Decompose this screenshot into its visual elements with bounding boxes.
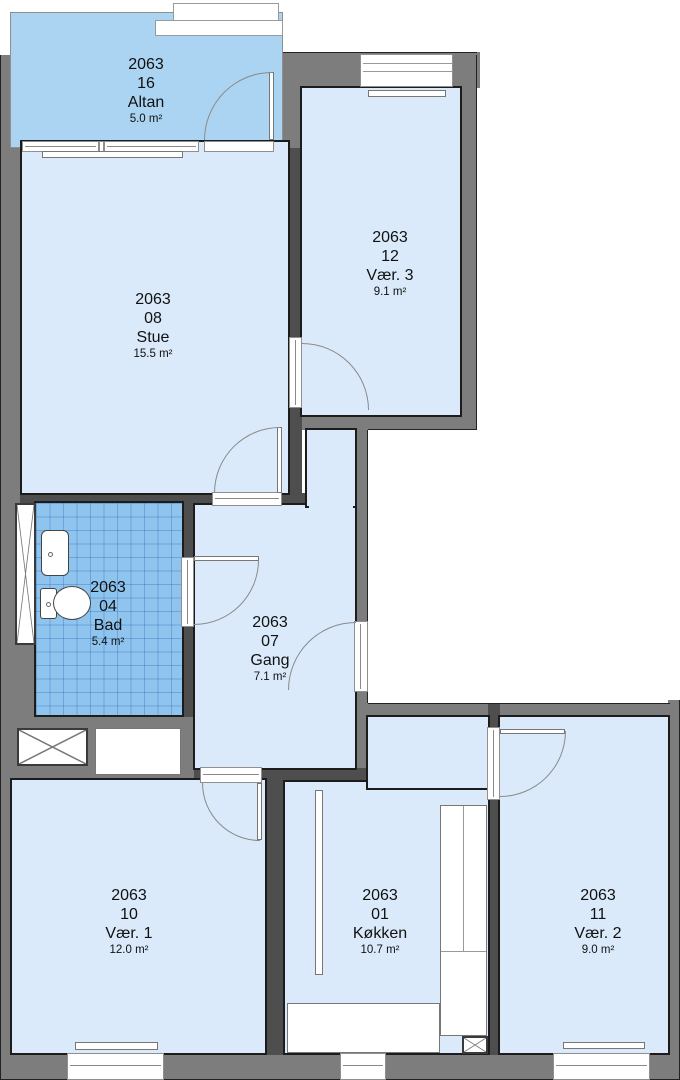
entrance-door-opening [354,621,368,692]
balcony-structure [155,20,283,36]
room-unit: 10 [105,905,152,924]
radiator [42,151,183,158]
window [340,1053,386,1080]
wall [460,60,477,430]
room-gang-passage [305,428,357,508]
room-name: Bad [90,616,126,635]
wall [0,140,22,507]
room-area: 15.5 m² [134,347,173,362]
door-opening [181,557,194,627]
room-area: 5.0 m² [128,112,164,127]
door-opening [487,727,500,800]
room-unit: 11 [574,905,621,924]
room-unit: 04 [90,597,126,616]
room-id: 2063 [90,578,126,597]
room-unit: 08 [134,309,173,328]
room-label-stue: 2063 08 Stue 15.5 m² [134,290,173,362]
door-opening [200,767,262,783]
room-label-vaer1: 2063 10 Vær. 1 12.0 m² [105,886,152,958]
radiator [368,90,446,97]
room-area: 7.1 m² [250,670,289,685]
balcony-structure [173,3,279,21]
room-area: 12.0 m² [105,943,152,958]
room-id: 2063 [353,886,407,905]
room-unit: 12 [366,247,413,266]
room-label-vaer2: 2063 11 Vær. 2 9.0 m² [574,886,621,958]
room-unit: 01 [353,905,407,924]
building-outline [368,429,477,430]
room-name: Køkken [353,924,407,943]
kitchen-counter [315,790,323,975]
balcony-door-opening [204,141,274,152]
wall [265,780,285,1055]
window [553,1053,650,1080]
wall [290,408,302,495]
room-label-bad: 2063 04 Bad 5.4 m² [90,578,126,650]
window [360,54,453,87]
floor-plan-canvas: 2063 16 Altan 5.0 m² 2063 08 Stue 15.5 m… [0,0,680,1080]
room-id: 2063 [128,55,164,74]
room-id: 2063 [105,886,152,905]
sink [41,530,69,576]
radiator [563,1042,645,1049]
room-unit: 07 [250,632,289,651]
room-id: 2063 [574,886,621,905]
room-koekken-seam [370,776,486,788]
shaft-box [15,503,36,645]
room-id: 2063 [250,613,289,632]
room-id: 2063 [134,290,173,309]
building-outline [0,55,1,1080]
room-label-altan: 2063 16 Altan 5.0 m² [128,55,164,127]
room-area: 5.4 m² [90,635,126,650]
room-id: 2063 [366,228,413,247]
room-name: Vær. 3 [366,266,413,285]
kitchen-counter [440,805,487,1036]
building-outline [368,703,670,704]
room-name: Vær. 2 [574,924,621,943]
door-opening [212,492,282,506]
room-area: 9.1 m² [366,285,413,300]
shaft-box [462,1036,488,1054]
room-label-vaer3: 2063 12 Vær. 3 9.1 m² [366,228,413,300]
room-label-koekken: 2063 01 Køkken 10.7 m² [353,886,407,958]
room-unit: 16 [128,74,164,93]
shaft-box [17,728,88,766]
room-name: Altan [128,93,164,112]
wardrobe [95,728,181,775]
room-area: 10.7 m² [353,943,407,958]
room-name: Stue [134,328,173,347]
toilet-bowl [53,586,91,620]
room-name: Gang [250,651,289,670]
room-gang-seam [309,500,353,510]
door-opening [289,337,302,408]
room-label-gang: 2063 07 Gang 7.1 m² [250,613,289,685]
kitchen-counter [287,1003,440,1053]
building-outline [283,52,477,53]
room-name: Vær. 1 [105,924,152,943]
room-area: 9.0 m² [574,943,621,958]
window [67,1053,164,1080]
radiator [75,1042,158,1050]
building-outline [476,55,477,430]
